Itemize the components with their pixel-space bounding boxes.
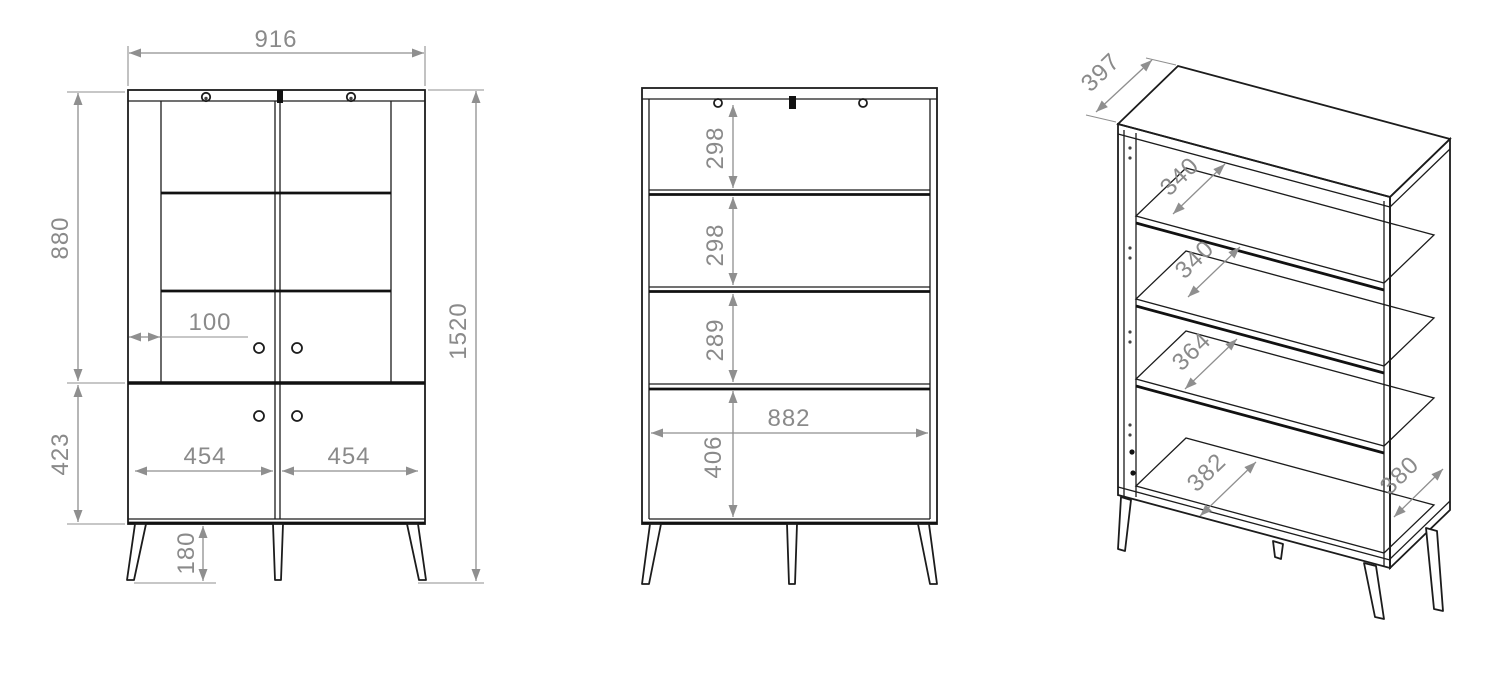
dim-iso-top-depth: 397 <box>1076 48 1176 122</box>
isometric-view: 397 340 340 364 382 380 <box>1076 48 1450 619</box>
knob-lower-right <box>292 411 302 421</box>
interior-leg-right <box>918 524 937 584</box>
dim-label-364: 364 <box>1167 327 1217 376</box>
dim-gap-top: 298 <box>702 105 733 188</box>
knob-lower-left <box>254 411 264 421</box>
dim-iso-shelf1-depth: 340 <box>1155 152 1225 214</box>
interior-top-latch <box>789 96 796 109</box>
dim-label-180: 180 <box>173 531 200 574</box>
iso-shelf1-front-edge <box>1136 223 1384 290</box>
dim-iso-shelf2-depth: 340 <box>1170 235 1240 297</box>
dim-front-door-left: 454 <box>135 443 273 471</box>
dim-gap-bottom: 406 <box>700 391 733 517</box>
dim-gap-middle: 298 <box>702 197 733 285</box>
front-cabinet <box>127 90 426 580</box>
knob-upper-right <box>292 343 302 353</box>
iso-pin-holes <box>1128 146 1135 475</box>
dim-front-lower-height: 423 <box>47 385 125 524</box>
front-carcass-outline <box>128 90 425 524</box>
dim-front-stile: 100 <box>129 309 248 337</box>
dim-label-454-left: 454 <box>183 443 226 470</box>
dim-label-397: 397 <box>1076 48 1126 97</box>
iso-front-face <box>1118 124 1390 568</box>
iso-topboard-right-edge <box>1390 149 1450 207</box>
top-latch <box>277 90 283 103</box>
front-view: 916 880 423 1520 100 454 <box>47 26 484 583</box>
dim-iso-shelf3-depth: 364 <box>1167 327 1237 389</box>
iso-leg-middle <box>1273 541 1283 559</box>
iso-right-face <box>1390 139 1450 568</box>
iso-shelf3-front-edge <box>1136 386 1384 453</box>
dim-gap-lower: 289 <box>702 294 733 382</box>
dim-label-289: 289 <box>702 318 729 361</box>
dim-iso-side-depth: 380 <box>1375 451 1443 517</box>
dim-inner-width: 882 <box>651 405 928 433</box>
front-leg-right <box>407 524 426 580</box>
dim-label-1520: 1520 <box>445 302 472 359</box>
dim-front-width: 916 <box>128 26 425 86</box>
iso-leg-back-right <box>1426 528 1443 611</box>
interior-leg-left <box>642 524 661 584</box>
dim-iso-bottom-depth: 382 <box>1182 448 1256 516</box>
iso-right-bottom-edge-inner <box>1390 501 1450 559</box>
dim-label-882: 882 <box>767 405 810 432</box>
iso-front-bottom-edge-inner <box>1118 487 1390 560</box>
technical-drawing: 916 880 423 1520 100 454 <box>0 0 1500 690</box>
dim-label-100: 100 <box>188 309 231 336</box>
dim-label-380: 380 <box>1375 451 1425 500</box>
interior-carcass-outline <box>642 88 937 524</box>
front-leg-left <box>127 524 146 580</box>
interior-cabinet <box>642 88 937 584</box>
dim-label-916: 916 <box>254 26 297 53</box>
dim-label-423: 423 <box>47 432 74 475</box>
dim-label-340a: 340 <box>1155 152 1205 201</box>
dim-front-total-height: 1520 <box>428 90 484 581</box>
interior-hinge-hole-right <box>859 99 867 107</box>
front-leg-middle <box>273 524 283 580</box>
drawing-page: 916 880 423 1520 100 454 <box>0 0 1500 690</box>
dim-label-880: 880 <box>47 216 74 259</box>
dim-label-298b: 298 <box>702 223 729 266</box>
interior-view: 298 298 289 406 882 <box>642 88 937 584</box>
dim-front-door-right: 454 <box>282 443 418 471</box>
hinge-screw-left-dot <box>204 97 207 100</box>
dim-label-454-right: 454 <box>327 443 370 470</box>
iso-leg-front-right <box>1364 563 1384 619</box>
interior-leg-middle <box>787 524 797 584</box>
hinge-screw-right-dot <box>349 97 352 100</box>
iso-leg-front-left <box>1118 497 1131 551</box>
iso-topboard-front-edge <box>1118 134 1390 207</box>
dim-front-upper-height: 880 <box>47 92 125 383</box>
interior-hinge-hole-left <box>714 99 722 107</box>
dim-label-406: 406 <box>700 435 727 478</box>
dim-front-leg-height: 180 <box>134 526 484 583</box>
dim-label-382: 382 <box>1182 448 1232 497</box>
knob-upper-left <box>254 343 264 353</box>
iso-cabinet <box>1118 66 1450 619</box>
dim-label-298a: 298 <box>702 126 729 169</box>
